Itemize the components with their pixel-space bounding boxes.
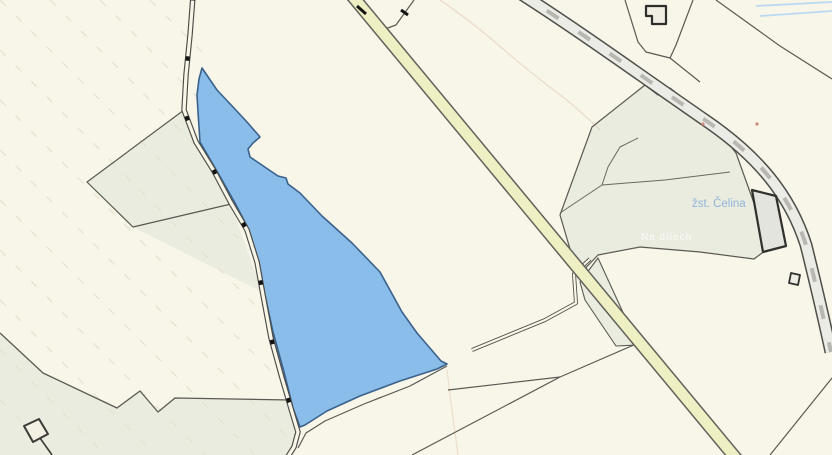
building-small-right (789, 273, 800, 285)
contour-line-lower (447, 370, 458, 455)
contour-line-upper (440, 0, 600, 130)
map-svg: žst. ČelinaNa dílech (0, 0, 832, 455)
station-label: žst. Čelina (692, 197, 746, 210)
map-canvas[interactable]: žst. ČelinaNa dílech (0, 0, 832, 455)
parcel-boundary-bottom-right (770, 378, 832, 455)
parcel-boundary-to-road-top (382, 0, 414, 30)
survey-dot-1 (701, 122, 704, 125)
stream-line-1 (756, 2, 832, 6)
building-top (646, 6, 666, 24)
field-name-label: Na dílech (641, 232, 692, 243)
parcel-boundary-bottom-center (412, 344, 636, 455)
stream-line-2 (760, 11, 832, 16)
field-path-fill (472, 259, 590, 350)
survey-dot-2 (755, 122, 758, 125)
